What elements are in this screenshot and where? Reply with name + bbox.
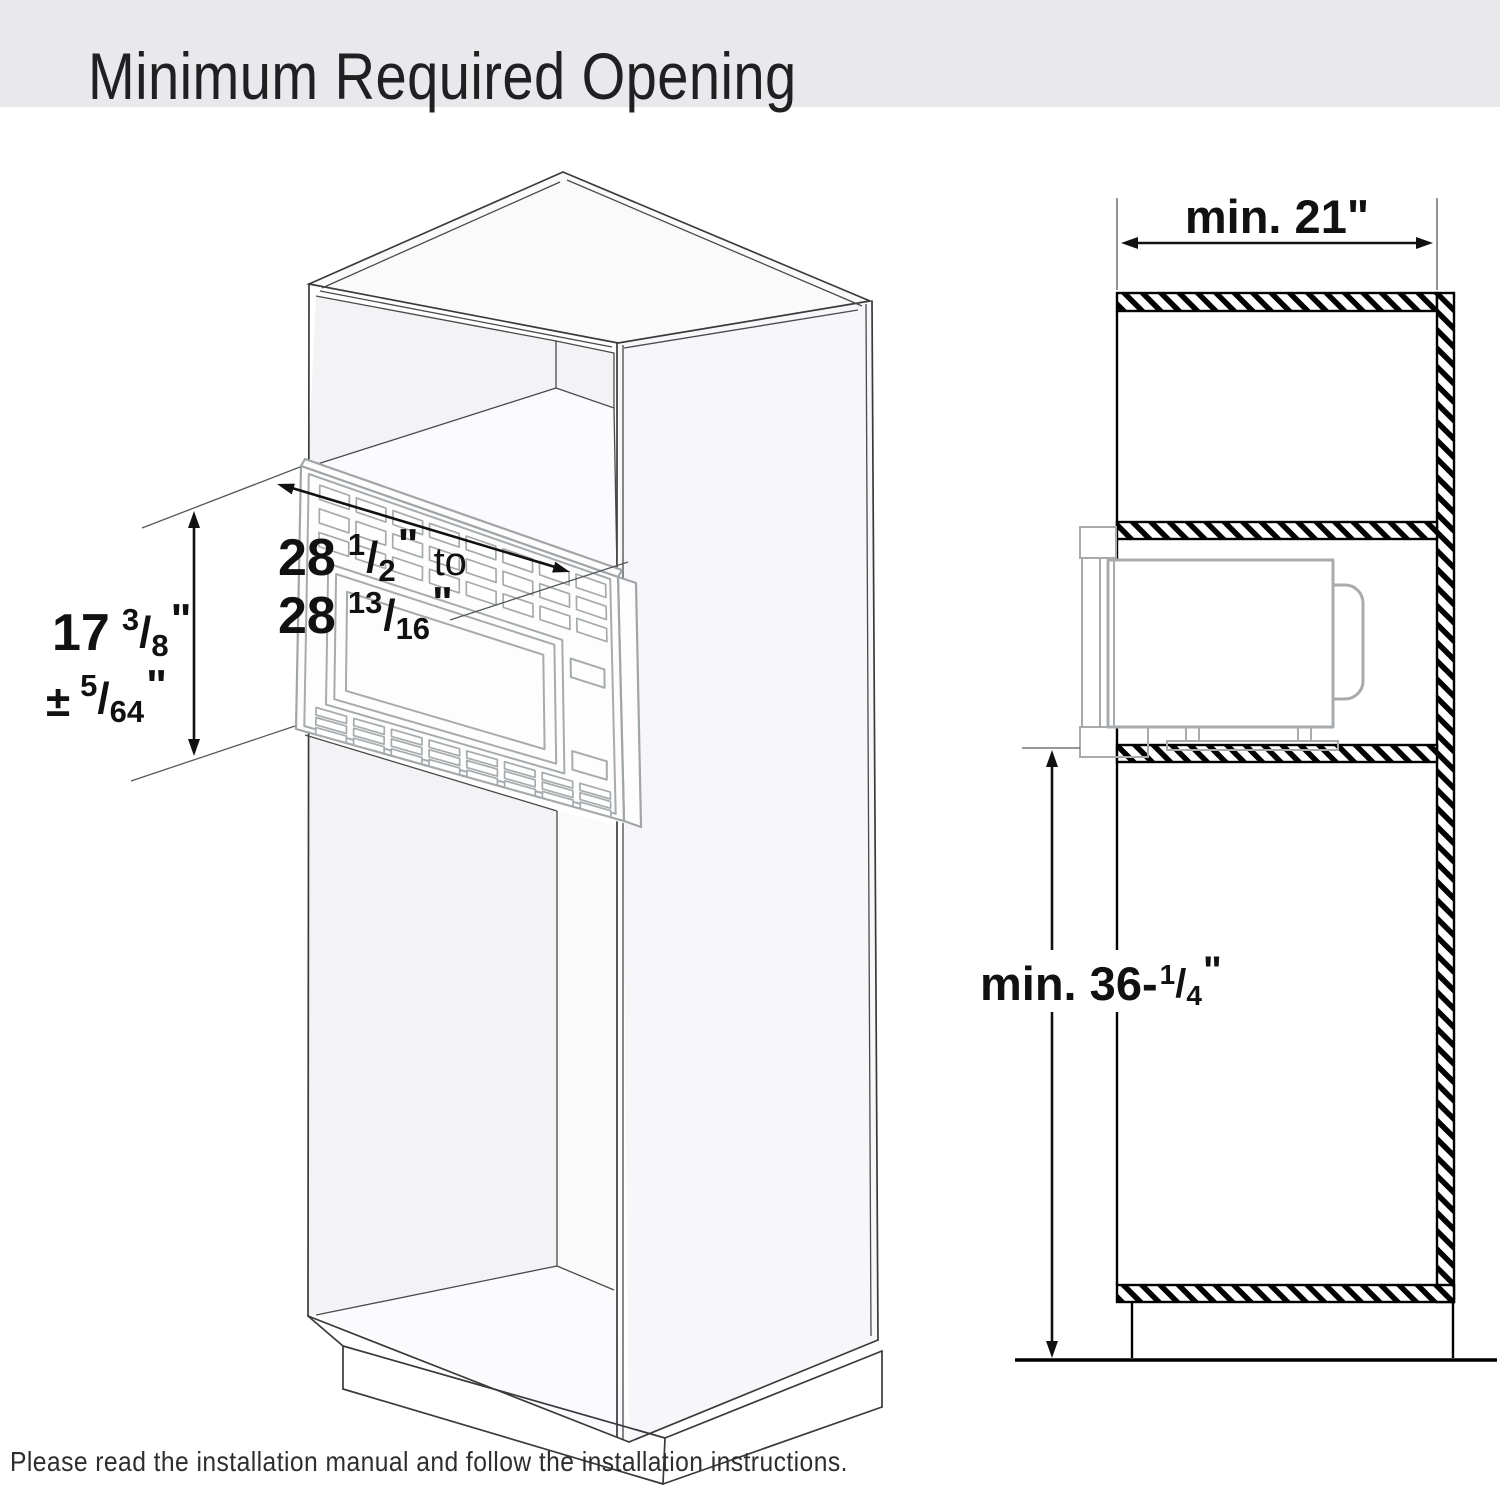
- width-l2-inch-mark: ": [432, 578, 453, 627]
- microwave-body: [1108, 560, 1333, 727]
- width-l2-slash: /: [383, 591, 395, 640]
- installation-diagram: 281/2" to 2813/16" 173/8" ±5/64" min. 21…: [0, 0, 1500, 1488]
- microwave-foot-front: [1186, 727, 1199, 741]
- min-height-slash: /: [1175, 962, 1186, 1006]
- height-l1-inch-mark: ": [171, 595, 192, 644]
- min-height-numerator: 1: [1160, 959, 1176, 990]
- side-height-arrow-up: [1046, 750, 1058, 767]
- min-width-text: min. 21: [1185, 190, 1347, 243]
- microwave-foot-back: [1298, 727, 1311, 741]
- cabinet-right-face: [618, 301, 878, 1442]
- side-middle-shelf: [1117, 522, 1437, 539]
- width-l1-slash: /: [366, 533, 378, 582]
- footer-note: Please read the installation manual and …: [10, 1446, 848, 1478]
- height-l1-numerator: 3: [122, 602, 139, 637]
- height-dimension-label-line1: 173/8": [52, 595, 191, 663]
- min-height-label: min. 36-1/4": [980, 949, 1222, 1011]
- width-l2-whole: 28: [278, 587, 336, 645]
- height-l2-slash: /: [97, 674, 109, 723]
- side-width-dimension: min. 21": [1117, 190, 1437, 290]
- width-l2-numerator: 13: [348, 585, 382, 620]
- extension-line-top: [142, 467, 300, 528]
- min-width-inch-mark: ": [1347, 190, 1369, 243]
- side-back-panel: [1437, 293, 1454, 1302]
- side-lower-shelf: [1117, 745, 1437, 762]
- height-l2-inch-mark: ": [146, 661, 167, 710]
- microwave-back-bump: [1333, 585, 1363, 699]
- lower-interior-left-wall: [308, 737, 557, 1316]
- width-l1-numerator: 1: [348, 527, 365, 562]
- side-height-arrow-down: [1046, 1341, 1058, 1358]
- side-microwave: [1080, 527, 1363, 757]
- height-dimension-label-line2: ±5/64": [46, 661, 167, 729]
- height-l2-numerator: 5: [80, 668, 97, 703]
- side-cabinet-section: [1015, 293, 1497, 1360]
- width-l1-whole: 28: [278, 529, 336, 587]
- height-l2-plusminus: ±: [46, 677, 70, 726]
- width-l1-inch-mark: ": [398, 520, 419, 569]
- side-height-dimension: min. 36-1/4": [980, 748, 1222, 1358]
- height-l2-denominator: 64: [110, 694, 145, 729]
- cabinet-front-left-edge: [308, 284, 309, 1316]
- width-l1-denominator: 2: [378, 553, 395, 588]
- side-trim-top-piece: [1080, 527, 1116, 558]
- width-l2-denominator: 16: [396, 611, 430, 646]
- min-height-text: min. 36-: [980, 957, 1158, 1010]
- extension-line-bottom: [131, 726, 295, 781]
- min-width-label: min. 21": [1185, 190, 1369, 243]
- min-height-inch-mark: ": [1203, 949, 1222, 993]
- height-arrow-down: [188, 739, 200, 756]
- height-l1-slash: /: [139, 608, 151, 657]
- side-top-panel: [1117, 293, 1437, 311]
- side-view: min. 21": [980, 190, 1497, 1360]
- height-arrow-up: [188, 511, 200, 528]
- side-width-arrow-left: [1121, 237, 1138, 249]
- side-width-arrow-right: [1416, 237, 1433, 249]
- height-l1-denominator: 8: [151, 628, 168, 663]
- front-view: 281/2" to 2813/16" 173/8" ±5/64": [46, 172, 882, 1484]
- height-l1-whole: 17: [52, 604, 110, 662]
- min-height-denominator: 4: [1186, 980, 1202, 1011]
- side-bottom-panel: [1117, 1285, 1454, 1302]
- width-arrow-left: [277, 484, 295, 495]
